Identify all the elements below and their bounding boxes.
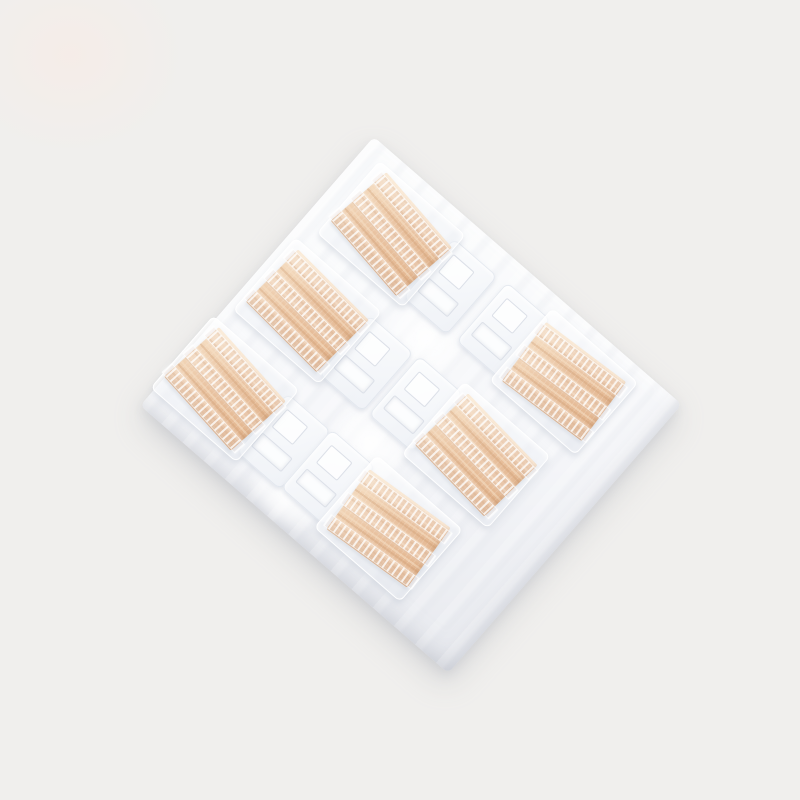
backdrop-tint	[0, 0, 185, 155]
blister-pack	[140, 137, 681, 673]
product-photo	[0, 0, 800, 800]
blister-cells	[140, 137, 681, 673]
